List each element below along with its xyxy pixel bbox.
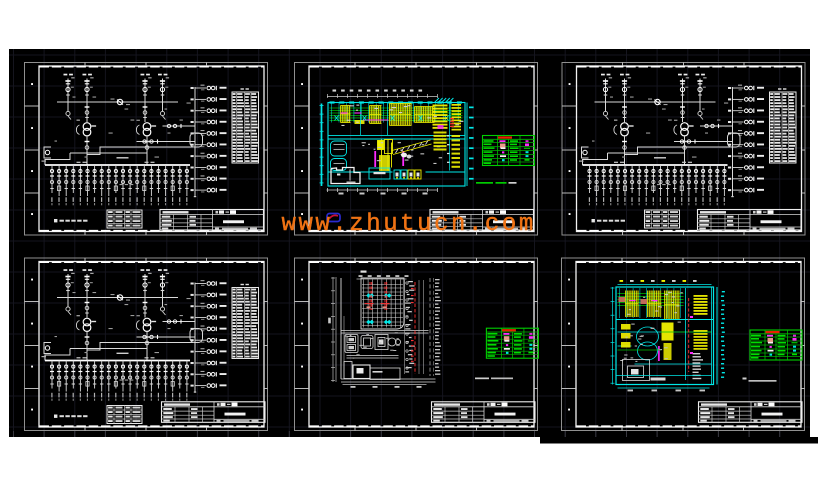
svg-text:www.zhutucn.com: www.zhutucn.com — [282, 211, 536, 238]
